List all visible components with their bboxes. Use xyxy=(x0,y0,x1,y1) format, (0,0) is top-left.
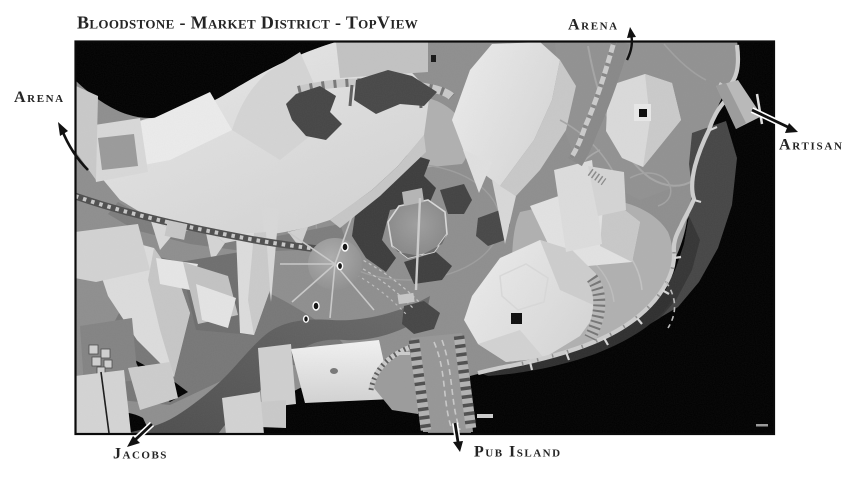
svg-text:Pub Island: Pub Island xyxy=(474,443,562,460)
svg-text:Jacobs: Jacobs xyxy=(113,445,168,462)
svg-text:Arena: Arena xyxy=(568,17,619,34)
svg-text:Arena: Arena xyxy=(14,89,65,106)
svg-text:Bloodstone - Market District -: Bloodstone - Market District - TopView xyxy=(77,12,418,32)
svg-text:Artisan: Artisan xyxy=(779,136,844,153)
